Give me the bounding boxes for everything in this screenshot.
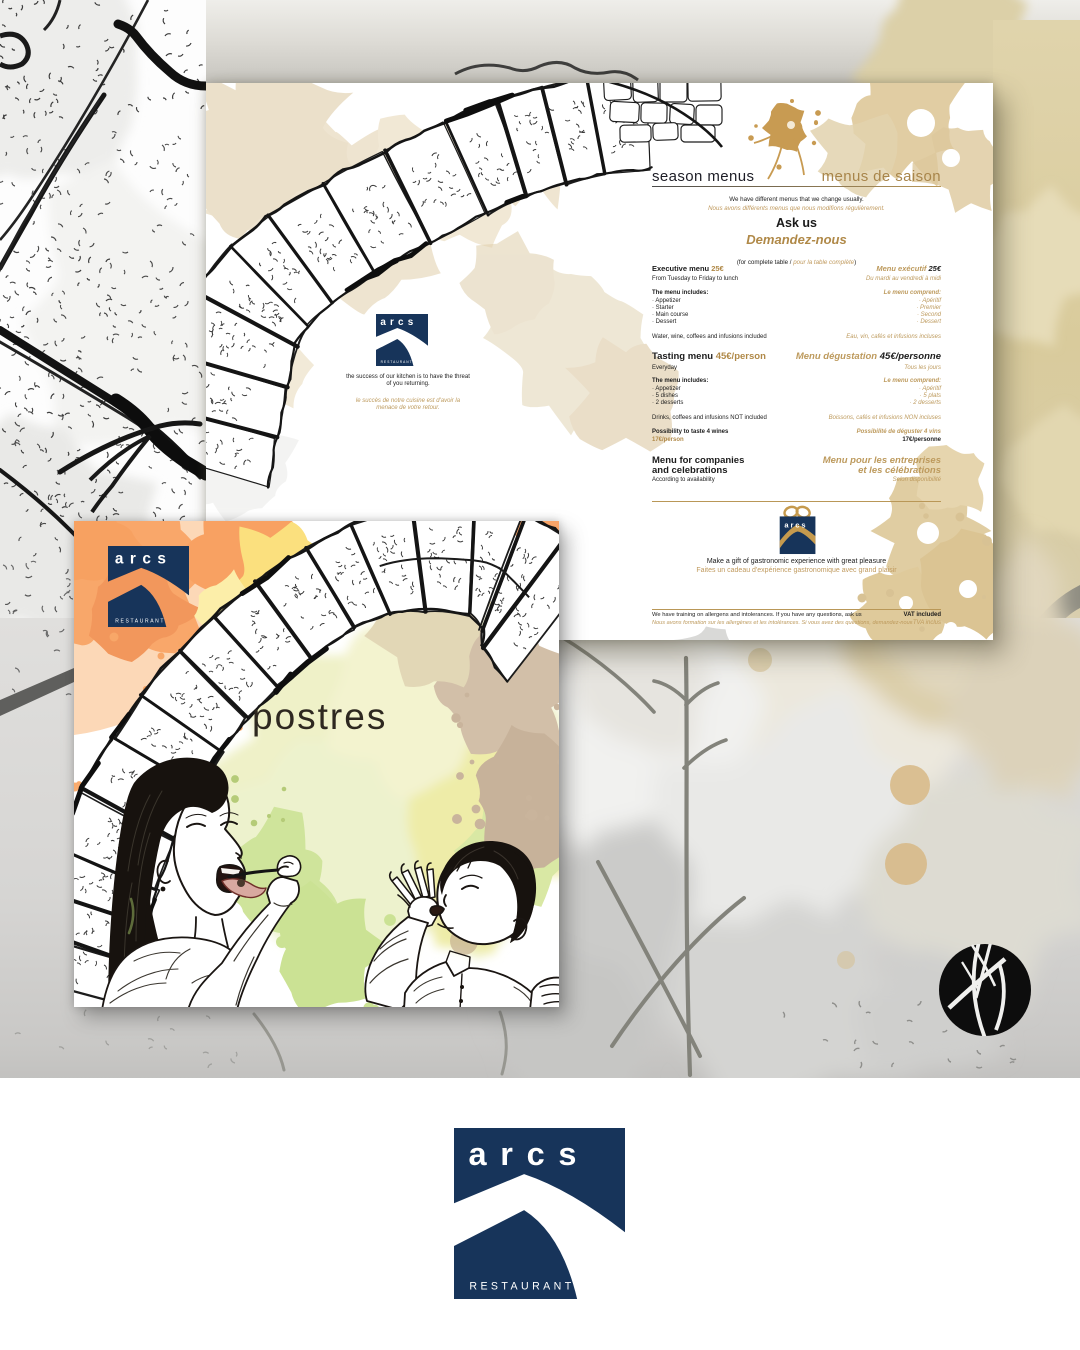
svg-text:arcs: arcs [784, 521, 807, 530]
